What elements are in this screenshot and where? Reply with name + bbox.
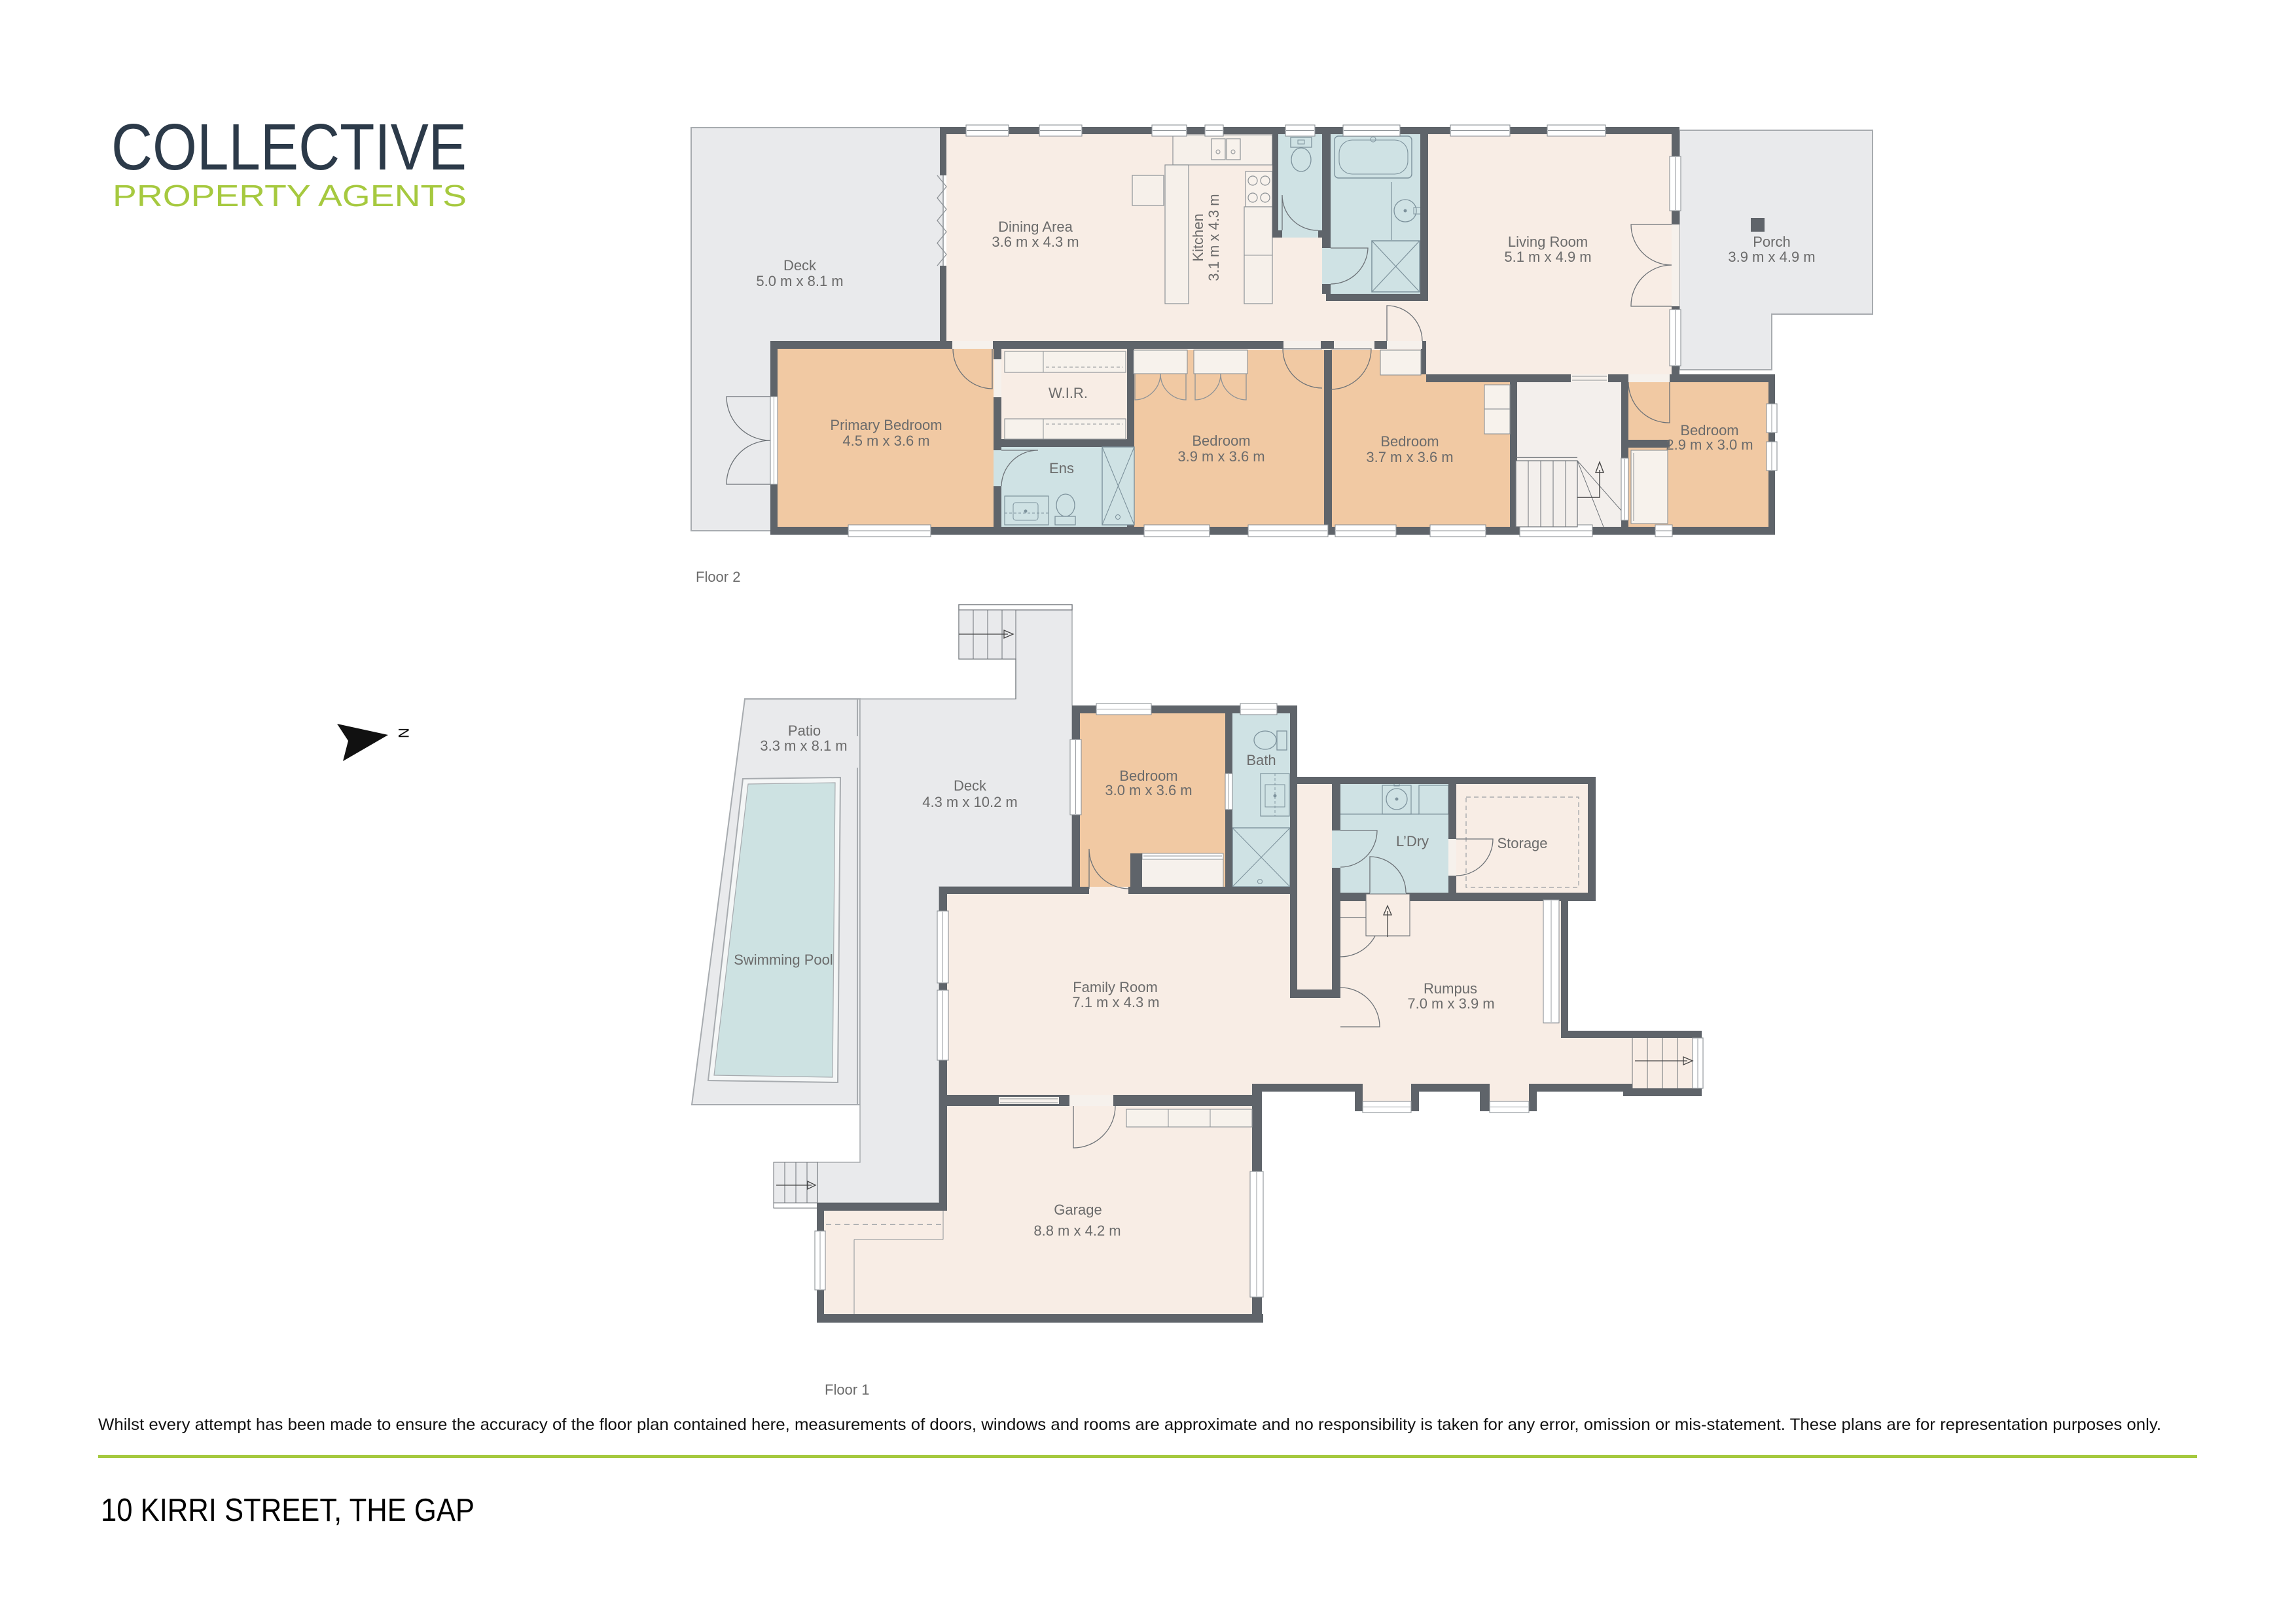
svg-text:N: N: [395, 728, 412, 738]
svg-text:2.9 m x 3.0 m: 2.9 m x 3.0 m: [1666, 437, 1753, 453]
svg-text:Whilst every attempt has been: Whilst every attempt has been made to en…: [98, 1416, 2161, 1434]
svg-text:3.6 m x 4.3 m: 3.6 m x 4.3 m: [992, 234, 1079, 250]
svg-text:Deck: Deck: [783, 257, 817, 274]
svg-text:Swimming Pool: Swimming Pool: [734, 952, 833, 968]
svg-text:Rumpus: Rumpus: [1424, 980, 1477, 997]
svg-text:8.8 m x 4.2 m: 8.8 m x 4.2 m: [1033, 1222, 1121, 1239]
svg-text:Garage: Garage: [1054, 1202, 1102, 1218]
svg-text:4.5 m x 3.6 m: 4.5 m x 3.6 m: [842, 433, 929, 449]
svg-text:5.1 m x 4.9 m: 5.1 m x 4.9 m: [1504, 249, 1591, 265]
svg-text:Floor 1: Floor 1: [825, 1382, 869, 1398]
svg-text:Deck: Deck: [954, 777, 987, 794]
svg-text:4.3 m x 10.2 m: 4.3 m x 10.2 m: [922, 794, 1018, 810]
svg-text:Living Room: Living Room: [1508, 234, 1588, 250]
svg-text:3.3 m x 8.1 m: 3.3 m x 8.1 m: [760, 738, 847, 754]
svg-text:L’Dry: L’Dry: [1396, 833, 1429, 849]
svg-text:COLLECTIVE: COLLECTIVE: [111, 111, 467, 184]
svg-text:Floor 2: Floor 2: [696, 569, 740, 585]
svg-text:3.1 m x 4.3 m: 3.1 m x 4.3 m: [1206, 194, 1222, 281]
svg-text:7.1 m x 4.3 m: 7.1 m x 4.3 m: [1072, 994, 1159, 1010]
svg-text:W.I.R.: W.I.R.: [1049, 385, 1088, 401]
svg-text:10 KIRRI STREET, THE GAP: 10 KIRRI STREET, THE GAP: [101, 1493, 475, 1528]
svg-text:Dining Area: Dining Area: [998, 219, 1073, 235]
svg-text:3.9 m x 3.6 m: 3.9 m x 3.6 m: [1177, 448, 1265, 465]
svg-text:Porch: Porch: [1753, 234, 1790, 250]
svg-text:Bath: Bath: [1246, 752, 1276, 768]
svg-text:3.7 m x 3.6 m: 3.7 m x 3.6 m: [1366, 449, 1453, 465]
svg-text:3.0 m x 3.6 m: 3.0 m x 3.6 m: [1105, 782, 1192, 798]
svg-text:7.0 m x 3.9 m: 7.0 m x 3.9 m: [1407, 995, 1494, 1012]
svg-text:Ens: Ens: [1049, 460, 1074, 476]
svg-text:3.9 m x 4.9 m: 3.9 m x 4.9 m: [1728, 249, 1815, 265]
svg-text:Storage: Storage: [1497, 835, 1547, 851]
svg-text:Kitchen: Kitchen: [1190, 213, 1206, 261]
svg-text:PROPERTY AGENTS: PROPERTY AGENTS: [113, 179, 467, 213]
svg-text:Primary Bedroom: Primary Bedroom: [830, 417, 942, 433]
svg-text:Family Room: Family Room: [1073, 979, 1158, 995]
svg-text:Bedroom: Bedroom: [1380, 433, 1439, 450]
svg-text:5.0 m x 8.1 m: 5.0 m x 8.1 m: [756, 273, 843, 289]
svg-text:Bedroom: Bedroom: [1192, 433, 1250, 449]
svg-text:Patio: Patio: [788, 722, 821, 739]
